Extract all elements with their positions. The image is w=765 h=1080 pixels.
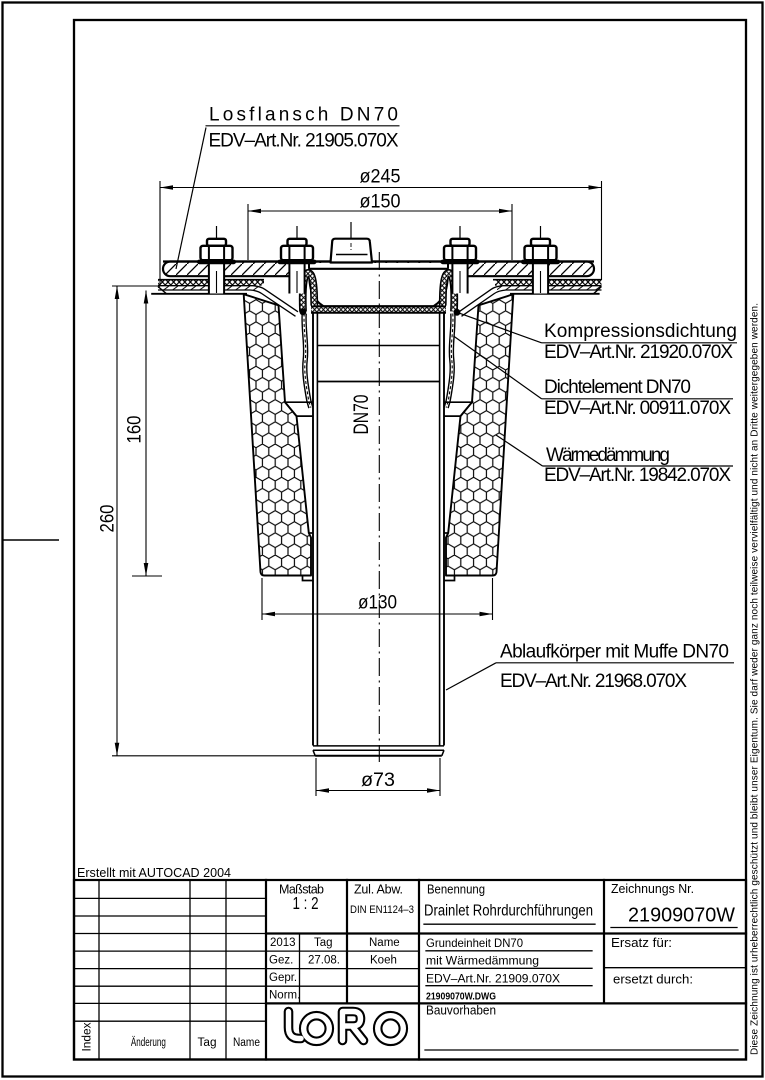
svg-text:Koeh: Koeh (370, 955, 397, 967)
svg-text:EDV–Art.Nr. 21920.070X: EDV–Art.Nr. 21920.070X (544, 342, 733, 363)
svg-text:ø73: ø73 (361, 769, 395, 791)
svg-text:160: 160 (124, 415, 146, 443)
svg-text:Name: Name (233, 1037, 260, 1049)
svg-text:Tag: Tag (314, 937, 333, 949)
svg-text:ø245: ø245 (360, 166, 401, 188)
svg-text:2013: 2013 (270, 937, 296, 949)
svg-text:Benennung: Benennung (427, 883, 485, 897)
svg-text:Wärmedämmung: Wärmedämmung (546, 445, 670, 466)
svg-text:Grundeinheit DN70: Grundeinheit DN70 (426, 937, 523, 950)
svg-text:Ablaufkörper mit Muffe DN70: Ablaufkörper mit Muffe DN70 (500, 642, 729, 663)
svg-text:Diese Zeichnung ist urheberrec: Diese Zeichnung ist urheberrechtlich ges… (750, 303, 761, 1055)
svg-text:Gepr.: Gepr. (269, 972, 297, 984)
svg-text:ø130: ø130 (358, 592, 397, 614)
svg-text:Norm.: Norm. (269, 990, 300, 1002)
svg-text:EDV–Art.Nr. 21968.070X: EDV–Art.Nr. 21968.070X (500, 671, 687, 692)
svg-text:mit Wärmedämmung: mit Wärmedämmung (426, 955, 539, 968)
svg-text:EDV–Art.Nr. 21909.070X: EDV–Art.Nr. 21909.070X (426, 972, 560, 985)
svg-text:Zeichnungs Nr.: Zeichnungs Nr. (611, 882, 694, 896)
svg-text:Änderung: Änderung (131, 1037, 166, 1049)
svg-text:260: 260 (97, 504, 119, 532)
svg-text:Name: Name (369, 937, 400, 949)
svg-text:27.08.: 27.08. (308, 955, 340, 967)
svg-text:21909070W.DWG: 21909070W.DWG (426, 991, 496, 1003)
svg-text:ø150: ø150 (360, 191, 401, 213)
svg-text:Ersatz für:: Ersatz für: (611, 936, 672, 950)
svg-text:Index: Index (82, 1022, 94, 1051)
svg-text:Bauvorhaben: Bauvorhaben (426, 1004, 496, 1018)
svg-text:DN70: DN70 (350, 395, 373, 435)
svg-text:Gez.: Gez. (269, 955, 293, 967)
svg-text:1 : 2: 1 : 2 (293, 893, 319, 913)
svg-text:EDV–Art.Nr. 00911.070X: EDV–Art.Nr. 00911.070X (544, 398, 731, 419)
svg-text:DIN EN1124–3: DIN EN1124–3 (350, 904, 414, 916)
svg-text:EDV–Art.Nr. 21905.070X: EDV–Art.Nr. 21905.070X (209, 131, 399, 152)
svg-text:ersetzt durch:: ersetzt durch: (613, 973, 693, 987)
svg-text:Kompressionsdichtung: Kompressionsdichtung (544, 321, 737, 342)
svg-text:Tag: Tag (198, 1037, 217, 1049)
svg-text:21909070W: 21909070W (628, 905, 735, 927)
svg-text:Drainlet Rohrdurchführungen: Drainlet Rohrdurchführungen (424, 903, 593, 920)
svg-text:Erstellt mit AUTOCAD 2004: Erstellt mit AUTOCAD 2004 (77, 866, 231, 880)
svg-text:Dichtelement DN70: Dichtelement DN70 (544, 377, 691, 398)
svg-text:EDV–Art.Nr. 19842.070X: EDV–Art.Nr. 19842.070X (544, 465, 731, 486)
svg-text:Zul. Abw.: Zul. Abw. (354, 883, 403, 897)
